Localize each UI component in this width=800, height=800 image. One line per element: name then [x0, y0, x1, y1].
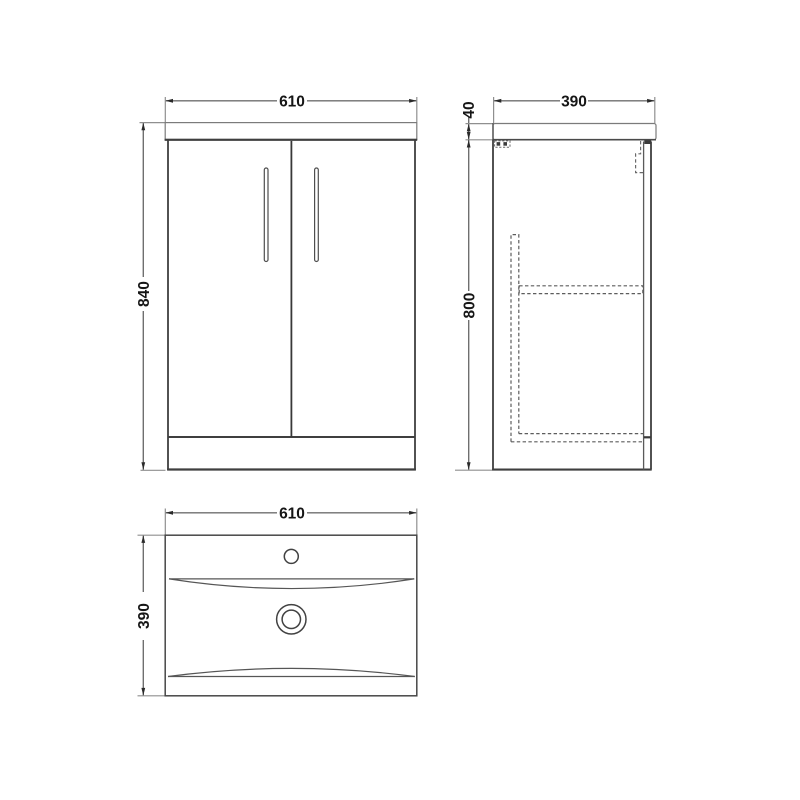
- svg-text:610: 610: [279, 506, 305, 523]
- svg-text:610: 610: [279, 94, 305, 111]
- svg-text:390: 390: [136, 603, 153, 629]
- svg-text:800: 800: [461, 293, 478, 319]
- svg-text:40: 40: [461, 101, 478, 118]
- svg-text:390: 390: [561, 94, 587, 111]
- svg-text:840: 840: [136, 281, 153, 307]
